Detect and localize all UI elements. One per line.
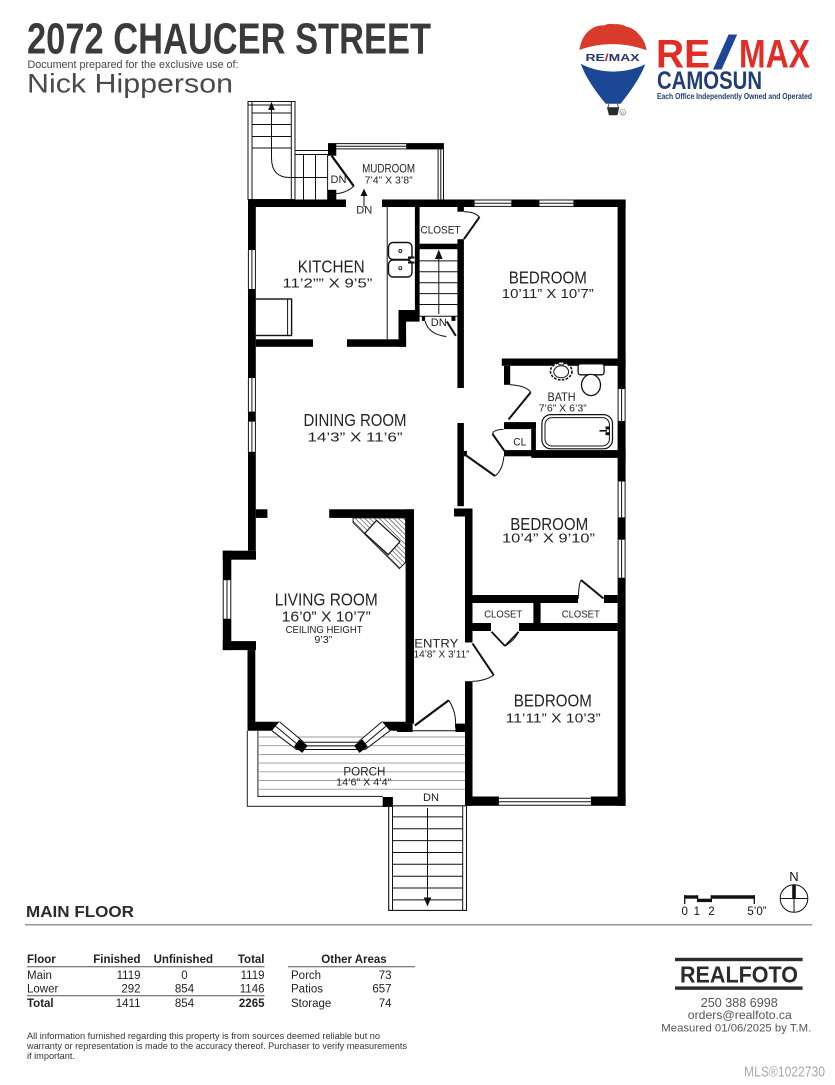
svg-text:5’0”: 5’0” — [747, 906, 766, 918]
svg-text:14’3” X 11’6”: 14’3” X 11’6” — [308, 430, 403, 445]
svg-text:74: 74 — [379, 998, 392, 1010]
svg-text:1: 1 — [694, 906, 700, 918]
svg-text:Porch: Porch — [291, 970, 321, 982]
svg-text:BEDROOM: BEDROOM — [509, 268, 587, 288]
svg-text:Storage: Storage — [291, 998, 331, 1010]
svg-text:BEDROOM: BEDROOM — [514, 691, 592, 711]
svg-text:CL: CL — [513, 436, 526, 448]
svg-text:orders@realfoto.ca: orders@realfoto.ca — [688, 1008, 792, 1022]
svg-text:warranty or representation is: warranty or representation is made to th… — [26, 1041, 407, 1051]
svg-text:Measured 01/06/2025 by T.M.: Measured 01/06/2025 by T.M. — [661, 1023, 811, 1035]
svg-text:73: 73 — [379, 970, 392, 982]
svg-text:if important.: if important. — [27, 1051, 75, 1061]
svg-text:14’8” X 3’11”: 14’8” X 3’11” — [414, 649, 470, 661]
svg-text:1119: 1119 — [117, 970, 141, 982]
svg-text:Main: Main — [27, 970, 52, 982]
svg-text:Patios: Patios — [291, 984, 323, 996]
svg-text:0: 0 — [681, 906, 687, 918]
svg-text:RE/MAX: RE/MAX — [586, 52, 640, 64]
svg-text:10’11” X 10’7”: 10’11” X 10’7” — [502, 286, 594, 301]
svg-text:10’4” X 9’10”: 10’4” X 9’10” — [502, 531, 595, 546]
svg-text:Unfinished: Unfinished — [154, 954, 213, 966]
svg-text:CLOSET: CLOSET — [562, 609, 601, 621]
svg-text:11’2”” X 9’5”: 11’2”” X 9’5” — [282, 276, 372, 291]
svg-text:Nick Hipperson: Nick Hipperson — [27, 69, 233, 99]
svg-text:Finished: Finished — [93, 954, 140, 966]
svg-text:Each Office Independently Owne: Each Office Independently Owned and Oper… — [657, 91, 812, 101]
svg-text:LIVING ROOM: LIVING ROOM — [275, 590, 378, 610]
svg-text:292: 292 — [121, 984, 140, 996]
svg-text:657: 657 — [372, 984, 391, 996]
svg-text:Total: Total — [27, 998, 54, 1010]
svg-text:1146: 1146 — [240, 984, 265, 996]
svg-text:854: 854 — [175, 998, 195, 1010]
svg-text:9’3”: 9’3” — [314, 635, 332, 646]
svg-text:1119: 1119 — [241, 970, 265, 982]
svg-text:DN: DN — [331, 174, 347, 186]
svg-text:854: 854 — [175, 984, 195, 996]
svg-text:N: N — [789, 869, 798, 884]
svg-text:DN: DN — [431, 317, 447, 329]
svg-text:11’11” X 10’3”: 11’11” X 10’3” — [506, 711, 601, 726]
svg-text:MUDROOM: MUDROOM — [362, 162, 415, 176]
svg-text:DINING ROOM: DINING ROOM — [304, 410, 407, 430]
svg-text:7’4” X 3’8”: 7’4” X 3’8” — [365, 175, 414, 187]
svg-text:1411: 1411 — [116, 998, 141, 1010]
svg-text:0: 0 — [181, 970, 187, 982]
svg-text:KITCHEN: KITCHEN — [298, 257, 365, 277]
svg-text:2072 CHAUCER STREET: 2072 CHAUCER STREET — [27, 16, 431, 64]
svg-text:MLS®1022730: MLS®1022730 — [744, 1064, 825, 1081]
svg-text:2265: 2265 — [239, 998, 265, 1010]
svg-text:Lower: Lower — [27, 984, 58, 996]
svg-text:Other Areas: Other Areas — [321, 954, 386, 966]
svg-text:CLOSET: CLOSET — [484, 609, 523, 621]
svg-text:14’6” X 4’4”: 14’6” X 4’4” — [336, 777, 392, 789]
svg-text:DN: DN — [423, 792, 439, 804]
svg-text:7’6” X 6’3”: 7’6” X 6’3” — [539, 402, 588, 414]
svg-text:Total: Total — [238, 954, 265, 966]
svg-text:REALFOTO: REALFOTO — [680, 962, 798, 988]
svg-text:MAIN FLOOR: MAIN FLOOR — [26, 904, 134, 921]
svg-text:16’0” X 10’7”: 16’0” X 10’7” — [282, 609, 371, 626]
svg-text:DN: DN — [356, 205, 372, 217]
svg-text:Floor: Floor — [27, 954, 56, 966]
svg-text:CLOSET: CLOSET — [421, 225, 461, 237]
svg-text:All information furnished rega: All information furnished regarding this… — [27, 1031, 380, 1041]
svg-text:2: 2 — [708, 906, 714, 918]
